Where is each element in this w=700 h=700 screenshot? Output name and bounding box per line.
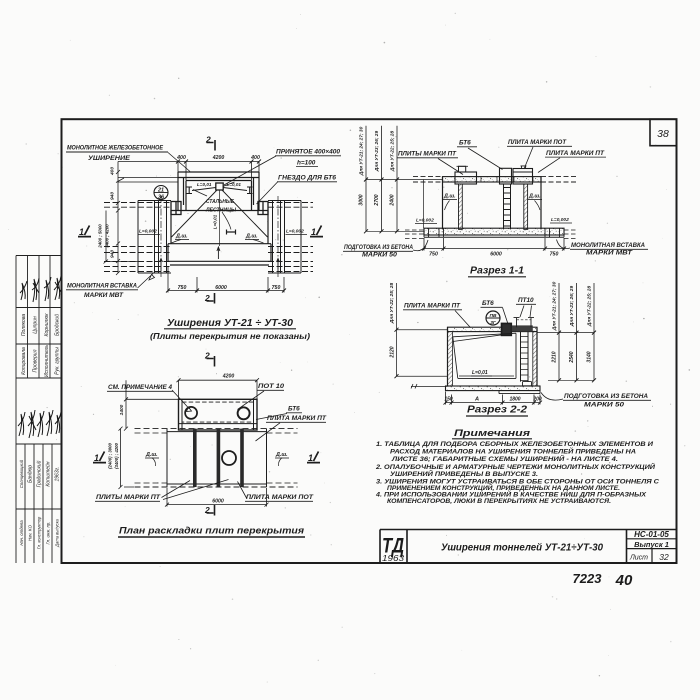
svg-text:h=100: h=100 xyxy=(297,160,316,167)
svg-text:Градинский: Градинский xyxy=(36,460,43,487)
svg-text:L=0,01: L=0,01 xyxy=(227,182,242,187)
svg-text:2120: 2120 xyxy=(390,346,396,358)
svg-text:6000: 6000 xyxy=(215,285,227,291)
svg-text:750: 750 xyxy=(550,252,559,258)
svg-text:МОНОЛИТНАЯ ВСТАВКА: МОНОЛИТНАЯ ВСТАВКА xyxy=(67,284,137,290)
svg-text:Бандюр: Бандюр xyxy=(28,465,34,483)
svg-text:3140: 3140 xyxy=(587,351,593,362)
svg-text:Для УТ-23; 26; 29: Для УТ-23; 26; 29 xyxy=(374,131,380,173)
svg-text:1963г.: 1963г. xyxy=(55,467,61,482)
svg-text:Копировала: Копировала xyxy=(21,347,27,375)
svg-text:БТ6: БТ6 xyxy=(459,140,471,147)
svg-text:Бродский: Бродский xyxy=(54,314,61,336)
svg-text:ПЛИТА МАРКИ ПОТ: ПЛИТА МАРКИ ПОТ xyxy=(508,140,567,146)
svg-text:Циприн: Циприн xyxy=(33,316,39,334)
svg-text:МОНОЛИТНОЕ ЖЕЛЕЗОБЕТОННОЕ: МОНОЛИТНОЕ ЖЕЛЕЗОБЕТОННОЕ xyxy=(67,146,164,152)
svg-text:750: 750 xyxy=(272,285,281,291)
svg-text:150: 150 xyxy=(444,397,453,403)
svg-text:МАРКИ МВТ: МАРКИ МВТ xyxy=(586,251,634,257)
svg-text:ПОТ 10: ПОТ 10 xyxy=(258,384,285,390)
svg-text:2540: 2540 xyxy=(569,351,575,363)
svg-text:СМ. ПРИМЕЧАНИЕ 4: СМ. ПРИМЕЧАНИЕ 4 xyxy=(108,385,173,391)
svg-text:400: 400 xyxy=(110,167,116,176)
svg-text:Нач. отдела: Нач. отдела xyxy=(19,520,24,546)
svg-text:400: 400 xyxy=(250,155,260,161)
svg-text:НС-01-05: НС-01-05 xyxy=(634,530,669,539)
svg-text:ПЛИТА МАРКИ ПТ: ПЛИТА МАРКИ ПТ xyxy=(546,151,605,157)
svg-text:Для УТ-21; 24; 27; 30: Для УТ-21; 24; 27; 30 xyxy=(552,281,558,331)
svg-text:(3400) ; 4200: (3400) ; 4200 xyxy=(114,442,119,468)
svg-text:УШИРЕНИЕ: УШИРЕНИЕ xyxy=(88,156,131,162)
svg-text:МОНОЛИТНАЯ ВСТАВКА: МОНОЛИТНАЯ ВСТАВКА xyxy=(571,243,645,249)
svg-text:ПЛИТА МАРКИ ПОТ: ПЛИТА МАРКИ ПОТ xyxy=(246,495,315,501)
svg-text:L=0,002: L=0,002 xyxy=(286,229,304,235)
svg-text:Полякова: Полякова xyxy=(21,314,27,336)
svg-text:32: 32 xyxy=(659,552,669,562)
svg-text:400: 400 xyxy=(176,155,186,161)
svg-text:Уширения тоннелей УТ-21÷УТ-3: Уширения тоннелей УТ-21÷УТ-30 xyxy=(441,543,603,554)
svg-text:Для УТ-23; 26; 29: Для УТ-23; 26; 29 xyxy=(569,286,575,328)
svg-text:2400 ; 5000: 2400 ; 5000 xyxy=(98,224,103,249)
svg-text:2: 2 xyxy=(204,293,210,303)
svg-text:Для УТ-22; 25; 28: Для УТ-22; 25; 28 xyxy=(389,283,395,325)
svg-text:940: 940 xyxy=(110,250,116,258)
svg-text:3Г: 3Г xyxy=(490,320,497,326)
svg-text:L=0,002: L=0,002 xyxy=(139,229,157,235)
svg-text:Д.ш.: Д.ш. xyxy=(145,452,158,458)
svg-text:КОМПЕНСАТОРОВ, ЛЮКИ В ПЕРЕК: КОМПЕНСАТОРОВ, ЛЮКИ В ПЕРЕКРЫТИЯХ НЕ УСТ… xyxy=(387,498,611,505)
svg-text:МАРКИ МВТ: МАРКИ МВТ xyxy=(84,293,124,299)
svg-text:750: 750 xyxy=(178,285,187,291)
svg-text:ПВ: ПВ xyxy=(490,313,497,319)
svg-text:Солнцевицкий: Солнцевицкий xyxy=(19,459,24,488)
svg-text:Копштейн: Копштейн xyxy=(45,461,52,486)
svg-text:ЛЕСТНИЦЫ: ЛЕСТНИЦЫ xyxy=(205,208,236,214)
svg-text:2: 2 xyxy=(204,351,210,361)
svg-text:1400: 1400 xyxy=(119,404,125,415)
svg-text:БТ6: БТ6 xyxy=(482,300,494,307)
svg-text:Д.ш.: Д.ш. xyxy=(528,194,541,200)
svg-text:ПОДГОТОВКА ИЗ БЕТОНА: ПОДГОТОВКА ИЗ БЕТОНА xyxy=(564,394,648,400)
svg-text:БТ6: БТ6 xyxy=(288,406,300,413)
svg-text:1: 1 xyxy=(308,453,313,463)
svg-text:ЛИСТЕ 36; ГАБАРИТНЫЕ СХЕМЫ: ЛИСТЕ 36; ГАБАРИТНЫЕ СХЕМЫ УШИРЕНИЙ - НА… xyxy=(391,455,619,463)
svg-text:МАРКИ 50: МАРКИ 50 xyxy=(362,253,398,259)
svg-text:Примечания: Примечания xyxy=(454,427,531,438)
svg-text:Гл. инж. пр.: Гл. инж. пр. xyxy=(46,521,51,544)
svg-text:Уширения УТ-21 ÷ УТ-30: Уширения УТ-21 ÷ УТ-30 xyxy=(167,317,293,329)
svg-text:21: 21 xyxy=(157,188,164,194)
svg-text:Для УТ-21; 24; 27; 30: Для УТ-21; 24; 27; 30 xyxy=(359,126,365,176)
svg-text:РАСХОД МАТЕРИАЛОВ НА УШИРЕН: РАСХОД МАТЕРИАЛОВ НА УШИРЕНИЯ ТОННЕЛЕЙ П… xyxy=(390,448,637,456)
svg-text:40: 40 xyxy=(615,572,633,589)
svg-text:6000: 6000 xyxy=(490,252,502,258)
svg-text:38: 38 xyxy=(657,128,669,140)
svg-text:4200: 4200 xyxy=(212,155,225,161)
svg-text:6000: 6000 xyxy=(212,499,224,505)
svg-text:3400 ; 4200: 3400 ; 4200 xyxy=(105,224,110,248)
svg-text:СТАЛЬНЫЕ: СТАЛЬНЫЕ xyxy=(206,199,234,205)
svg-text:2700: 2700 xyxy=(374,194,380,206)
svg-text:Д.ш.: Д.ш. xyxy=(443,194,456,200)
svg-text:УШИРЕНИЙ ПРИВЕДЕНЫ В ВЫПУСК: УШИРЕНИЙ ПРИВЕДЕНЫ В ВЫПУСКЕ 3. xyxy=(390,470,538,478)
svg-text:2: 2 xyxy=(204,505,210,515)
svg-text:Для УТ-22; 25; 28: Для УТ-22; 25; 28 xyxy=(587,286,593,328)
svg-text:L=0,01: L=0,01 xyxy=(197,182,212,187)
svg-text:2: 2 xyxy=(205,135,211,145)
svg-text:Дата выпуска: Дата выпуска xyxy=(55,518,60,547)
svg-text:(2400) ; 3000: (2400) ; 3000 xyxy=(108,442,113,468)
svg-text:МАРКИ 50: МАРКИ 50 xyxy=(584,403,625,409)
svg-text:ПЛИТА МАРКИ ПТ: ПЛИТА МАРКИ ПТ xyxy=(404,304,461,310)
svg-text:Проверил: Проверил xyxy=(33,349,39,372)
svg-text:Лист: Лист xyxy=(629,555,648,562)
svg-text:200: 200 xyxy=(532,397,542,403)
svg-text:1: 1 xyxy=(311,227,316,237)
svg-text:1: 1 xyxy=(79,227,84,237)
svg-text:Нач. KO: Нач. KO xyxy=(28,524,33,541)
svg-text:Выпуск 1: Выпуск 1 xyxy=(634,540,669,549)
svg-text:36: 36 xyxy=(158,195,165,201)
svg-text:(Плиты перекрытия не показа: (Плиты перекрытия не показаны) xyxy=(150,332,310,341)
svg-text:940: 940 xyxy=(110,192,116,200)
svg-text:7223: 7223 xyxy=(573,571,603,586)
svg-text:План раскладки плит перекры: План раскладки плит перекрытия xyxy=(119,526,304,537)
svg-text:Корнилюк: Корнилюк xyxy=(44,313,50,337)
svg-text:ПЛИТА МАРКИ ПТ: ПЛИТА МАРКИ ПТ xyxy=(267,416,327,422)
svg-text:L=0,002: L=0,002 xyxy=(416,218,434,224)
svg-text:ПРИНЯТОЕ 400×400: ПРИНЯТОЕ 400×400 xyxy=(276,150,341,156)
svg-text:Д.ш.: Д.ш. xyxy=(245,234,258,240)
svg-text:1: 1 xyxy=(94,453,99,463)
svg-text:ПЛИТЫ МАРКИ ПТ: ПЛИТЫ МАРКИ ПТ xyxy=(398,152,457,158)
svg-text:Исполнитель: Исполнитель xyxy=(44,345,50,377)
svg-text:3000: 3000 xyxy=(359,194,365,205)
svg-text:750: 750 xyxy=(429,252,438,258)
svg-text:L=0,002: L=0,002 xyxy=(551,217,569,223)
svg-text:1800: 1800 xyxy=(509,397,520,403)
svg-text:ГНЕЗДО ДЛЯ БТ6: ГНЕЗДО ДЛЯ БТ6 xyxy=(278,176,337,182)
svg-text:ПЛИТЫ МАРКИ ПТ: ПЛИТЫ МАРКИ ПТ xyxy=(96,495,162,501)
svg-text:ПОДГОТОВКА ИЗ БЕТОНА: ПОДГОТОВКА ИЗ БЕТОНА xyxy=(344,245,413,251)
svg-text:Гл. конструктор: Гл. конструктор xyxy=(37,516,42,549)
svg-text:Рук. группы: Рук. группы xyxy=(55,347,61,375)
svg-text:1. ТАБЛИЦА ДЛЯ ПОДБОРА СБОР: 1. ТАБЛИЦА ДЛЯ ПОДБОРА СБОРНЫХ ЖЕЛЕЗОБЕТ… xyxy=(376,441,654,448)
svg-text:2400: 2400 xyxy=(390,194,396,206)
svg-text:2210: 2210 xyxy=(552,351,558,363)
svg-text:Д.ш.: Д.ш. xyxy=(175,234,188,240)
svg-text:1963: 1963 xyxy=(382,554,405,563)
svg-text:Разрез 1-1: Разрез 1-1 xyxy=(470,266,524,277)
svg-text:4200: 4200 xyxy=(222,374,235,380)
svg-text:Разрез 2-2: Разрез 2-2 xyxy=(467,405,528,416)
svg-text:L=0,01: L=0,01 xyxy=(472,370,488,376)
svg-text:ПТ10: ПТ10 xyxy=(518,297,534,304)
svg-text:А: А xyxy=(474,397,479,403)
svg-text:Для УТ-22; 25; 28: Для УТ-22; 25; 28 xyxy=(390,131,396,173)
svg-text:Д.ш.: Д.ш. xyxy=(275,452,288,458)
svg-text:2. ОПАЛУБОЧНЫЕ И АРМАТУРНЫЕ: 2. ОПАЛУБОЧНЫЕ И АРМАТУРНЫЕ ЧЕРТЕЖИ МОНО… xyxy=(375,463,656,471)
svg-text:L=0,01: L=0,01 xyxy=(212,214,217,229)
